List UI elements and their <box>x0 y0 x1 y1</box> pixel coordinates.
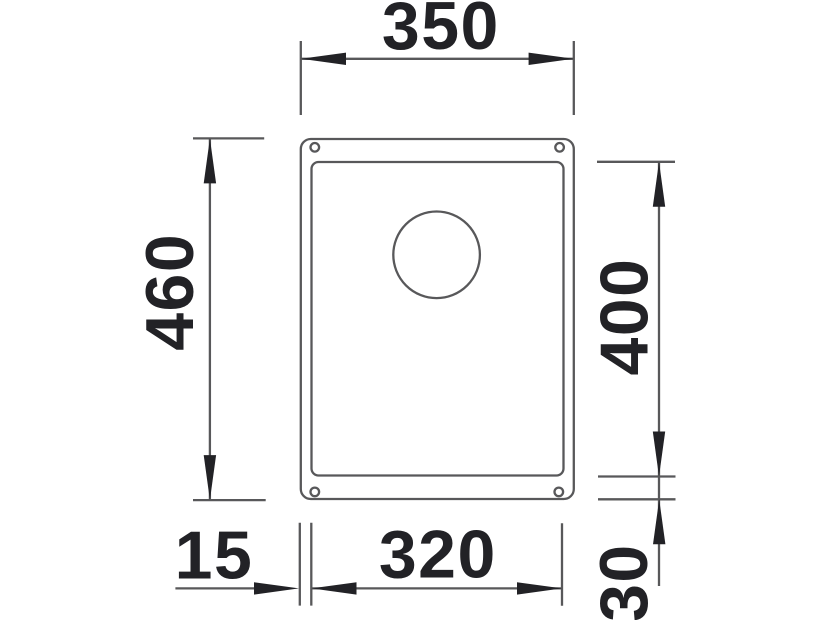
svg-text:460: 460 <box>132 233 208 351</box>
svg-text:320: 320 <box>379 517 497 593</box>
svg-text:15: 15 <box>175 517 254 593</box>
svg-text:30: 30 <box>586 543 662 620</box>
svg-text:350: 350 <box>382 0 500 64</box>
svg-text:400: 400 <box>587 258 663 376</box>
